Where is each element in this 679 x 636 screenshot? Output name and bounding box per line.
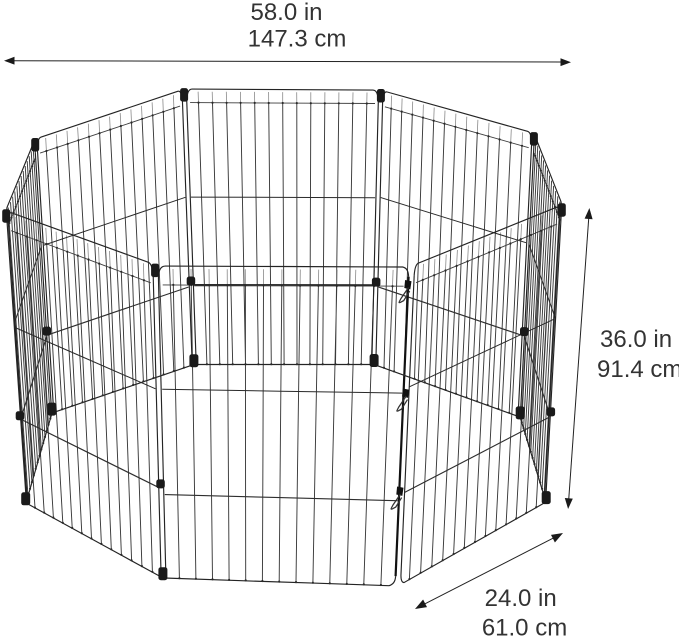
svg-text:58.0 in: 58.0 in xyxy=(250,0,322,26)
svg-text:36.0 in: 36.0 in xyxy=(600,326,672,353)
svg-text:147.3 cm: 147.3 cm xyxy=(248,26,347,53)
svg-text:91.4 cm: 91.4 cm xyxy=(597,356,679,383)
svg-text:24.0 in: 24.0 in xyxy=(485,585,557,612)
svg-text:61.0 cm: 61.0 cm xyxy=(482,615,567,636)
